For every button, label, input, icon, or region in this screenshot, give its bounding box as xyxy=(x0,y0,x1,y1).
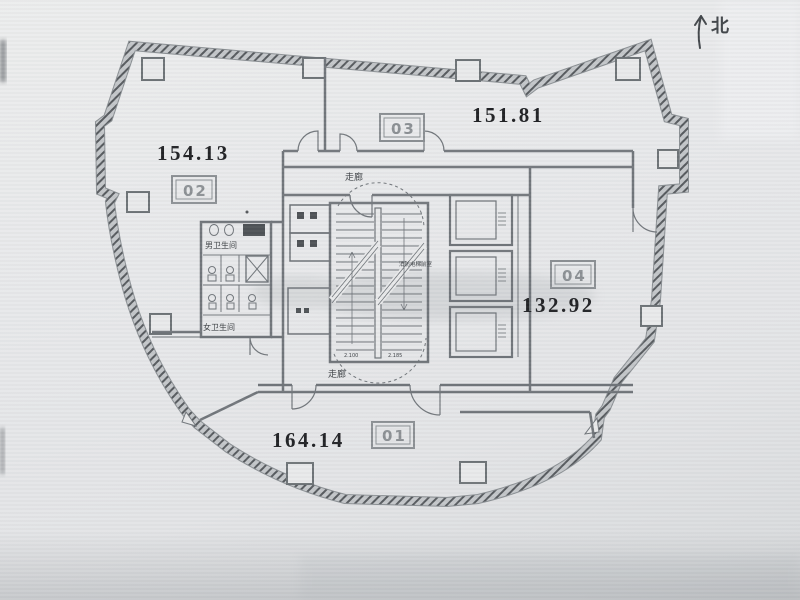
corridor-bottom-walls xyxy=(258,385,633,415)
north-arrow-icon xyxy=(695,16,706,48)
unit-02-tag-label: 02 xyxy=(183,182,208,200)
unit-03-area-label: 151.81 xyxy=(472,103,545,127)
floor-plan-drawing: 154.13 151.81 132.92 164.14 02 03 04 01 … xyxy=(0,0,800,600)
unit-04-tag-label: 04 xyxy=(562,267,587,285)
corridor-bottom-label: 走廊 xyxy=(328,368,346,380)
stair-annotation-left: 2.100 xyxy=(344,353,358,359)
service-rooms xyxy=(288,205,330,334)
stair-annotation-right: 2.185 xyxy=(388,353,402,359)
unit-04-area-label: 132.92 xyxy=(522,293,595,317)
north-label: 北 xyxy=(711,16,729,37)
mens-restroom-label: 男卫生间 xyxy=(205,240,237,250)
unit-01-tag-label: 01 xyxy=(382,427,407,445)
unit-01-area-label: 164.14 xyxy=(272,428,345,452)
unit-03-tag-label: 03 xyxy=(391,120,416,138)
corridor-top-label: 走廊 xyxy=(345,171,363,183)
partition-doors xyxy=(633,208,657,232)
fire-lobby-label: 消防电梯前室 xyxy=(399,260,433,268)
corridor-top-walls xyxy=(283,131,633,167)
womens-restroom-label: 女卫生间 xyxy=(203,322,235,332)
scanned-floor-plan-page: 154.13 151.81 132.92 164.14 02 03 04 01 … xyxy=(0,0,800,600)
unit-02-area-label: 154.13 xyxy=(157,141,230,165)
